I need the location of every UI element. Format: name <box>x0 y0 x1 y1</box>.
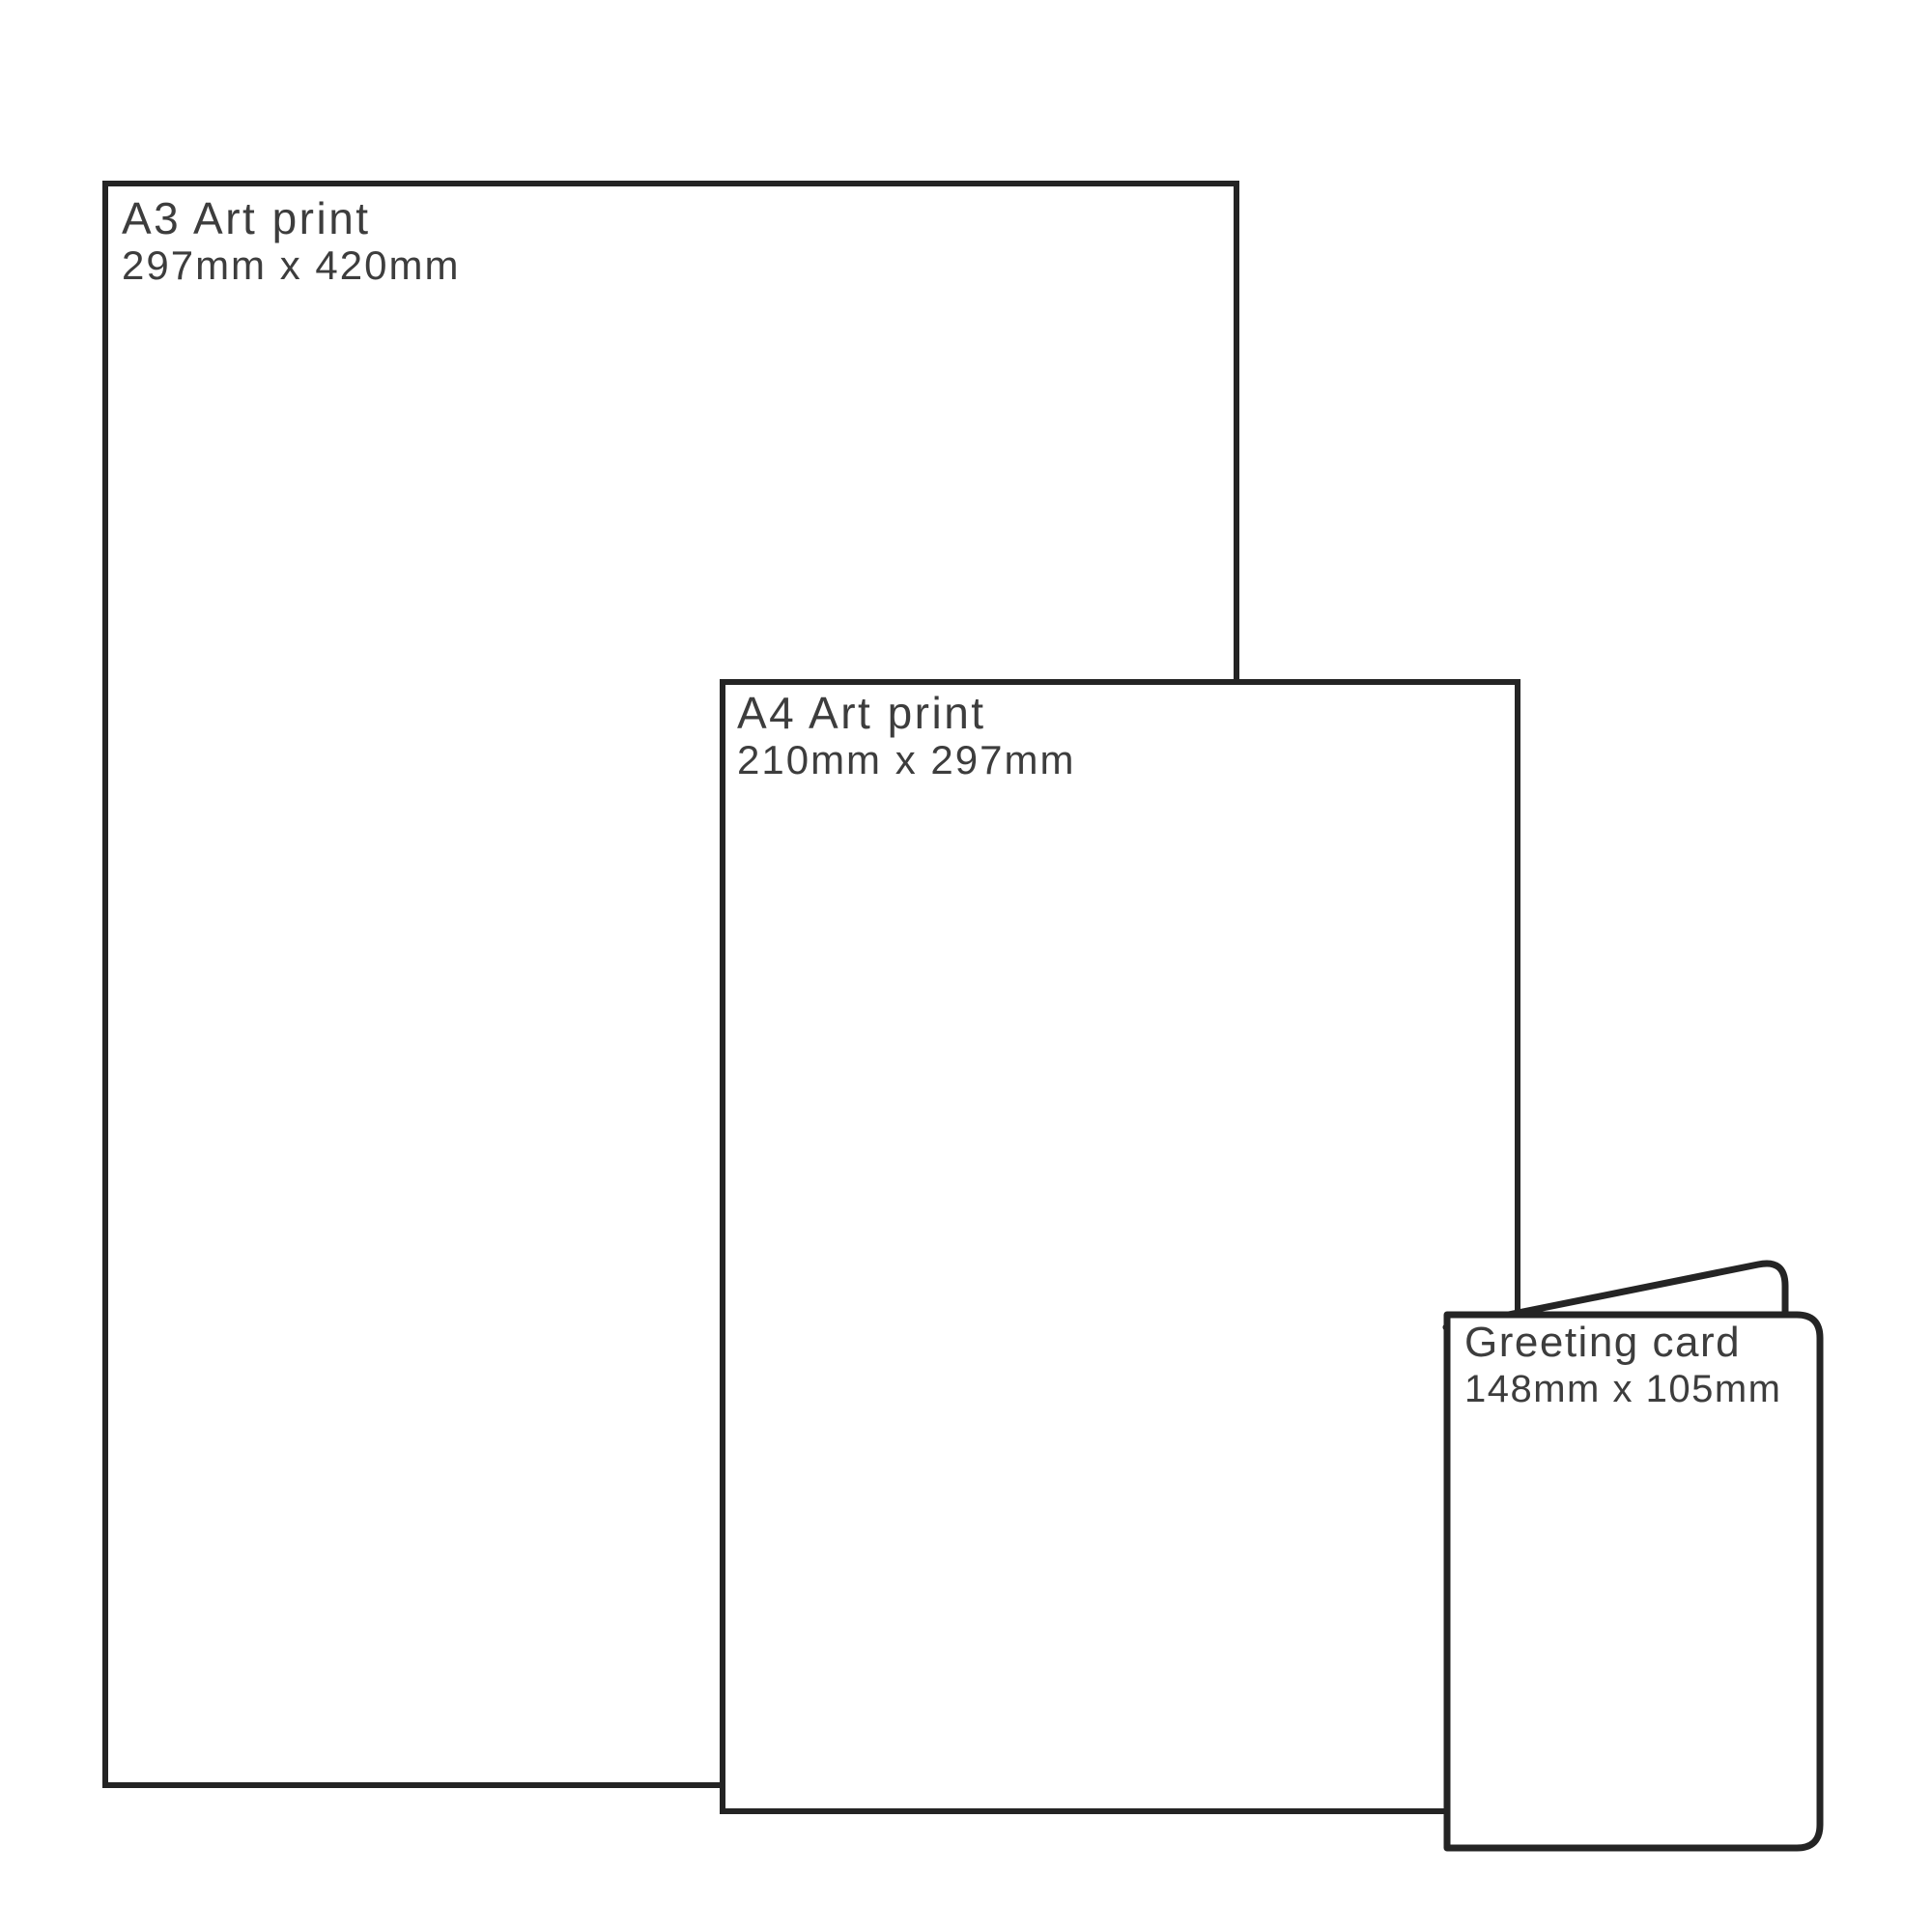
a4-sheet-outline <box>723 682 1518 1811</box>
size-comparison-diagram: A3 Art print 297mm x 420mm A4 Art print … <box>0 0 1932 1932</box>
greeting-card-front-outline <box>1447 1315 1820 1848</box>
diagram-canvas <box>0 0 1932 1932</box>
